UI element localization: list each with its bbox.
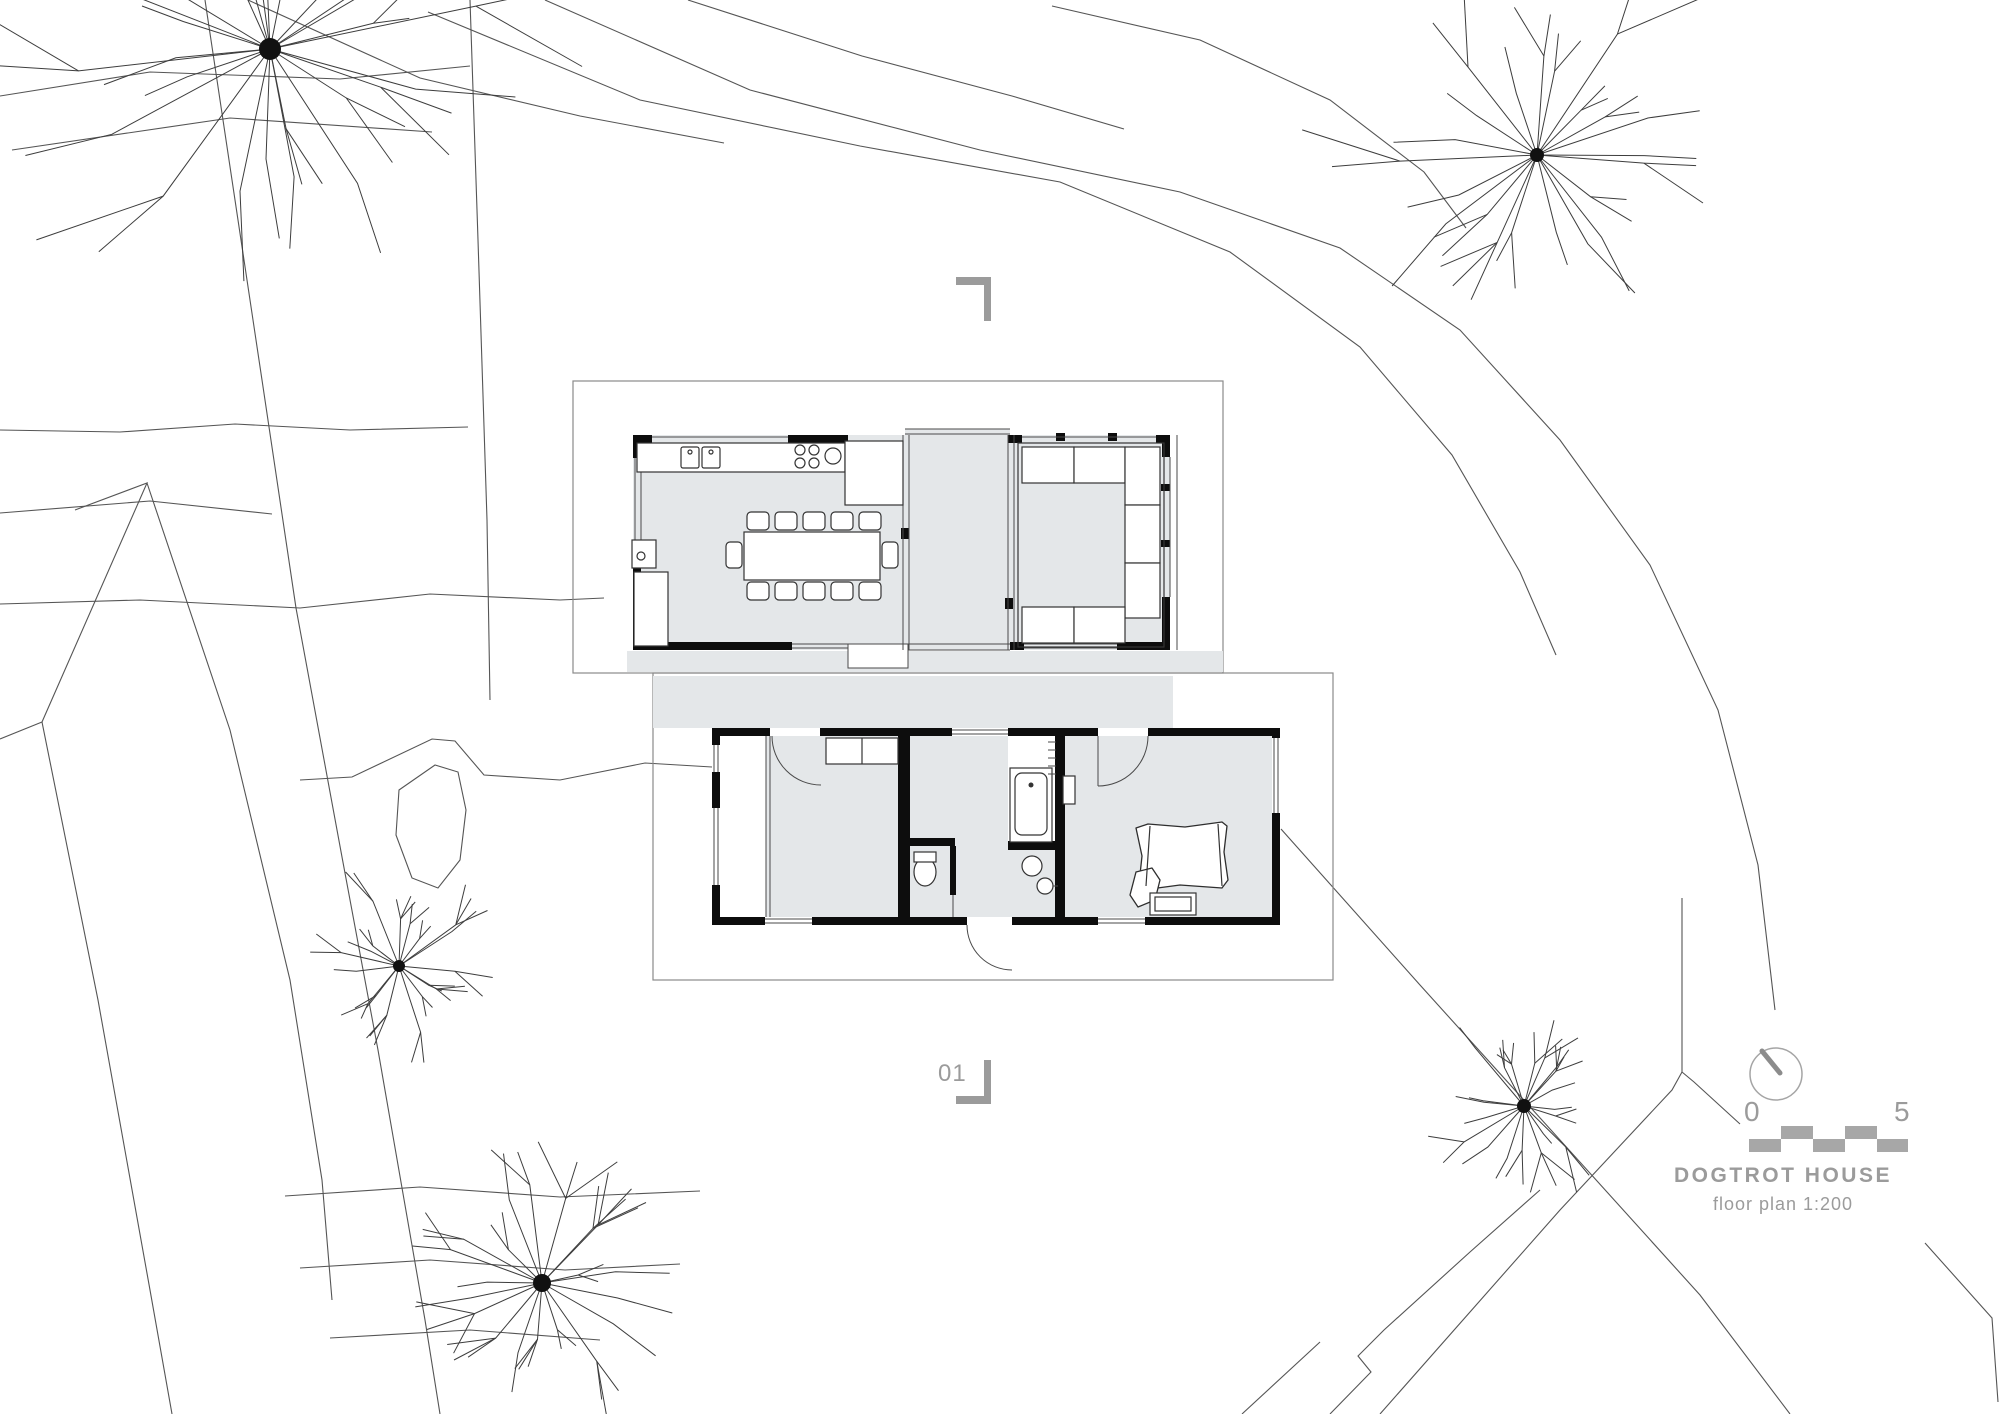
sofa-cushion (1074, 447, 1125, 483)
scale-end-label: 5 (1894, 1096, 1911, 1128)
contour-line (12, 118, 432, 150)
contour-line (248, 0, 724, 143)
east-window (1274, 738, 1278, 813)
bathtub (1010, 768, 1052, 842)
contour-line (300, 739, 712, 780)
tree-trunk-dot (1530, 148, 1544, 162)
dining-set (726, 512, 898, 600)
sofa-cushion (1125, 563, 1160, 618)
wall-niche (1063, 776, 1075, 804)
north-arrow (1750, 1048, 1802, 1100)
south-window (1098, 919, 1145, 923)
contour-line (0, 424, 468, 432)
dining-chair (775, 512, 797, 530)
north-needle (1762, 1051, 1780, 1073)
scale-start-label: 0 (1744, 1096, 1761, 1128)
dining-chair (831, 512, 853, 530)
dining-chair (726, 542, 742, 568)
sofa-cushion (1125, 447, 1160, 505)
boundary-line (0, 722, 42, 739)
entry-step (848, 644, 908, 668)
dining-chair (747, 582, 769, 600)
boundary-line (470, 0, 490, 700)
section-marker-top (956, 277, 991, 321)
contour-line (0, 594, 604, 608)
tree-trunk-dot (533, 1274, 551, 1292)
tree-trunk-dot (1517, 1099, 1531, 1113)
west-window (714, 745, 718, 772)
sliding-door-handle (1005, 598, 1013, 609)
boundary-line (1682, 1072, 1740, 1124)
sofa-cushion (1074, 607, 1125, 643)
storage-room-floor (720, 736, 766, 917)
tree-icon (0, 0, 582, 281)
sofa-cushion (1022, 607, 1074, 643)
toilet-tank (914, 852, 936, 862)
deck-north (627, 651, 1223, 672)
floor-plan-sheet: 0 5 DOGTROT HOUSE floor plan 1:200 01 (0, 0, 2000, 1414)
deck-south (653, 676, 1173, 728)
boundary-line (1380, 898, 1682, 1414)
west-window (714, 808, 718, 885)
boundary-line (42, 722, 172, 1414)
contour-line (300, 1260, 680, 1270)
wash-basin (1022, 856, 1042, 876)
entry-door-arc (967, 925, 1012, 970)
north-circle (1750, 1048, 1802, 1100)
dining-chair (803, 582, 825, 600)
contour-line (1052, 6, 1466, 228)
dining-chair (859, 582, 881, 600)
boundary-line (1242, 1342, 1320, 1414)
mullion-tick (1161, 484, 1170, 491)
dining-chair (747, 512, 769, 530)
tree-icon (412, 1142, 672, 1414)
tree-icon (310, 872, 493, 1063)
boundary-line (205, 0, 440, 1414)
wash-basin (1037, 878, 1053, 894)
bed-bench (1150, 893, 1196, 915)
contour-line (285, 1187, 700, 1197)
sofa-cushion (1125, 505, 1160, 563)
dining-table (744, 532, 880, 580)
boundary-line (1281, 829, 1790, 1414)
dining-chair (859, 512, 881, 530)
sofa-cushion (1022, 447, 1074, 483)
boundary-line (1330, 1190, 1540, 1414)
drawing-subtitle: floor plan 1:200 (1652, 1194, 1914, 1215)
tree-icon (1428, 1020, 1589, 1192)
south-window (765, 919, 812, 923)
tree-icon (1302, 0, 1704, 300)
dining-chair (882, 542, 898, 568)
sliding-door-handle (901, 528, 909, 539)
tall-cabinet (845, 441, 903, 505)
drawing-title: DOGTROT HOUSE (1652, 1164, 1914, 1188)
section-label: 01 (938, 1060, 967, 1088)
mullion-tick (1161, 540, 1170, 547)
hall-north-glass (952, 730, 1008, 734)
tree-trunk-dot (393, 960, 405, 972)
dining-chair (831, 582, 853, 600)
bathtub-drain (1029, 783, 1034, 788)
tree-trunk-dot (259, 38, 281, 60)
kitchen-cabinet (634, 572, 668, 646)
boundary-line (1925, 1243, 1998, 1402)
boundary-line (147, 483, 332, 1300)
scale-bar (1749, 1126, 1908, 1152)
rock-outcrop-outline (396, 765, 466, 888)
dining-chair (803, 512, 825, 530)
dining-chair (775, 582, 797, 600)
breezeway-floor (905, 429, 1010, 650)
contour-line (688, 0, 1124, 129)
